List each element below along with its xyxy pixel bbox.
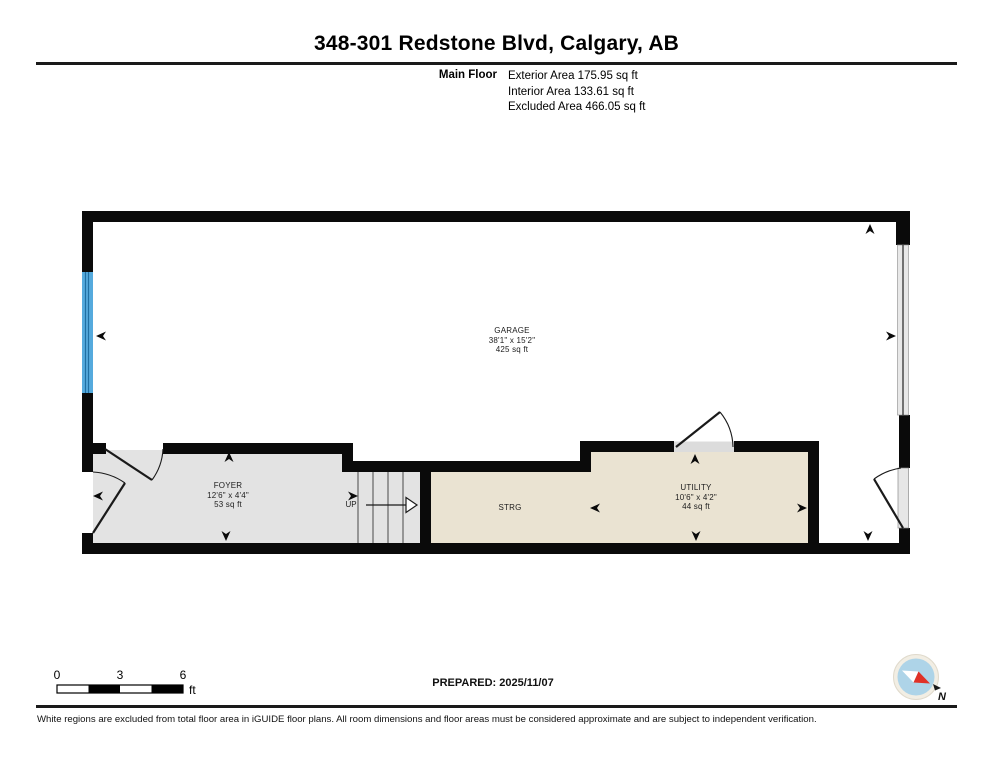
floorplan-drawing: N	[0, 0, 993, 768]
scale-tick-6: 6	[180, 668, 187, 682]
wall-foyer-top	[163, 443, 353, 454]
room-name: FOYER	[207, 481, 249, 491]
room-area: 425 sq ft	[489, 345, 535, 355]
floorplan-page: 348-301 Redstone Blvd, Calgary, AB Main …	[0, 0, 993, 768]
arrow-niche-down	[864, 531, 873, 541]
wall-foyer-stub	[93, 443, 106, 454]
room-area: 44 sq ft	[675, 502, 717, 512]
wall-bottom	[82, 543, 910, 554]
utility-door-slab	[674, 442, 734, 453]
arrow-garage-right	[886, 332, 896, 341]
stairs-up-label: UP	[345, 500, 356, 509]
wall-left-mid	[82, 393, 93, 472]
prepared-date: PREPARED: 2025/11/07	[393, 677, 593, 689]
garage-window	[82, 272, 93, 393]
wall-utility-right	[808, 441, 819, 554]
garage-label: GARAGE 38'1" x 15'2" 425 sq ft	[489, 326, 535, 355]
arrow-window-left	[96, 332, 106, 341]
room-dims: 10'6" x 4'2"	[675, 493, 717, 503]
wall-left-upper	[82, 211, 93, 272]
utility-label: UTILITY 10'6" x 4'2" 44 sq ft	[675, 483, 717, 512]
footer-divider	[36, 705, 957, 708]
wall-utility-top-west	[580, 441, 674, 452]
room-dims: 12'6" x 4'4"	[207, 491, 249, 501]
compass-n-label: N	[938, 691, 947, 703]
scale-unit: ft	[189, 683, 196, 697]
wall-stairs-right	[420, 461, 431, 554]
garage-door	[898, 245, 909, 415]
man-door-slab	[898, 468, 909, 528]
room-area: 53 sq ft	[207, 500, 249, 510]
compass: N	[894, 655, 948, 704]
wall-right-mid	[899, 415, 910, 468]
room-dims: 38'1" x 15'2"	[489, 336, 535, 346]
footer-disclaimer: White regions are excluded from total fl…	[37, 714, 967, 725]
storage-label: STRG	[498, 503, 521, 513]
wall-right-lower	[899, 528, 910, 554]
room-name: UTILITY	[675, 483, 717, 493]
room-name: STRG	[498, 503, 521, 513]
arrow-garage-up	[866, 224, 875, 234]
wall-corner-ne	[896, 211, 910, 245]
scale-tick-0: 0	[54, 668, 61, 682]
foyer-label: FOYER 12'6" x 4'4" 53 sq ft	[207, 481, 249, 510]
wall-stairs-top	[342, 461, 591, 472]
room-name: GARAGE	[489, 326, 535, 336]
scale-tick-3: 3	[117, 668, 124, 682]
scale-bar	[57, 685, 183, 693]
wall-utility-top-east	[734, 441, 819, 452]
wall-top	[82, 211, 910, 222]
